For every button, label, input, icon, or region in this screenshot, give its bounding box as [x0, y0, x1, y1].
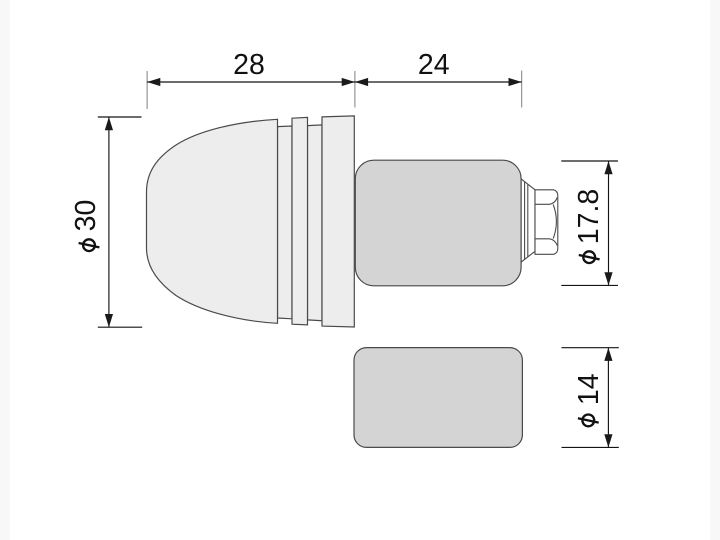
svg-text:30: 30 [70, 200, 102, 232]
svg-text:17.8: 17.8 [573, 189, 605, 244]
svg-text:24: 24 [418, 49, 450, 81]
svg-text:14: 14 [573, 373, 605, 405]
svg-text:28: 28 [233, 49, 265, 81]
